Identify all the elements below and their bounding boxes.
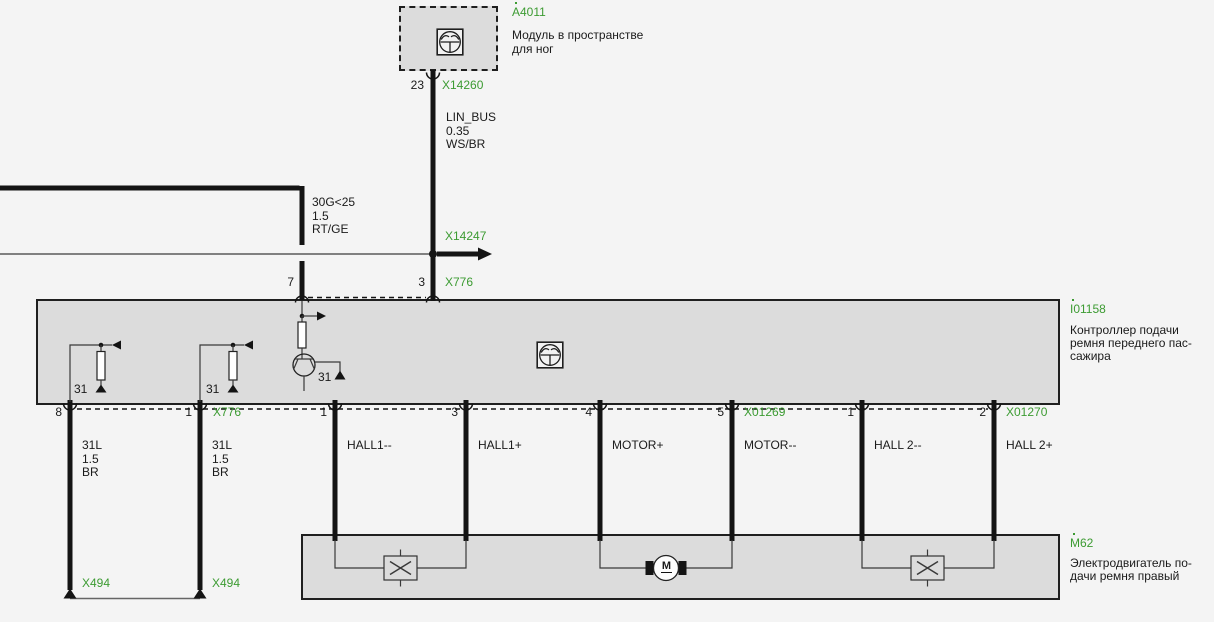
module-id-a4011[interactable]: A4011 [512, 6, 546, 20]
wire-label-31l-left-color: BR [82, 466, 99, 480]
module-desc-i01158-line3: сажира [1070, 350, 1111, 364]
pin-number-7: 7 [274, 276, 294, 290]
connector-label-x494-right[interactable]: X494 [212, 577, 240, 591]
pin-number-1a: 1 [172, 406, 192, 420]
pin-number-4: 4 [572, 406, 592, 420]
ground-label-31-b: 31 [206, 383, 219, 397]
pin-number-1c: 1 [834, 406, 854, 420]
wire-label-hall1-plus: HALL1+ [478, 439, 522, 453]
wire-label-hall2-plus: HALL 2+ [1006, 439, 1053, 453]
supply-wire [0, 186, 302, 300]
connector-label-x776-bottom[interactable]: X776 [213, 406, 241, 420]
module-box-m62[interactable] [301, 534, 1060, 600]
connector-label-x01269[interactable]: X01269 [744, 406, 785, 420]
pin-number-23: 23 [404, 79, 424, 93]
wire-label-31l-left-signal: 31L [82, 439, 102, 453]
wiring-diagram-canvas: A4011 Модуль в пространстве для ног 23 X… [0, 0, 1214, 622]
link-marker-dot [1072, 299, 1074, 301]
wire-label-31l-right-signal: 31L [212, 439, 232, 453]
wire-label-lin-bus-color: WS/BR [446, 138, 485, 152]
pin-number-1b: 1 [307, 406, 327, 420]
connector-label-x01270[interactable]: X01270 [1006, 406, 1047, 420]
module-desc-m62-line2: дачи ремня правый [1070, 570, 1179, 584]
connector-label-x494-left[interactable]: X494 [82, 577, 110, 591]
link-marker-dot [1073, 533, 1075, 535]
motor-symbol-letter: M [659, 560, 674, 573]
control-module-icon [536, 341, 564, 369]
pin-number-8: 8 [42, 406, 62, 420]
module-id-i01158[interactable]: I01158 [1070, 303, 1106, 317]
module-desc-a4011-line1: Модуль в пространстве [512, 29, 643, 43]
wire-label-hall1-minus: HALL1-- [347, 439, 392, 453]
connector-label-x14247[interactable]: X14247 [445, 230, 486, 244]
pin-number-2: 2 [966, 406, 986, 420]
connector-label-x14260[interactable]: X14260 [442, 79, 483, 93]
link-marker-dot [515, 2, 517, 4]
ground-label-31-a: 31 [74, 383, 87, 397]
module-box-a4011[interactable] [399, 6, 498, 71]
x14247-arrow [429, 248, 492, 261]
pin-number-3: 3 [405, 276, 425, 290]
wire-label-motor-minus: MOTOR-- [744, 439, 796, 453]
control-module-icon [436, 28, 464, 56]
pin-number-5: 5 [704, 406, 724, 420]
ground-label-31-c: 31 [318, 371, 331, 385]
pin-number-3b: 3 [438, 406, 458, 420]
module-desc-a4011-line2: для ног [512, 43, 554, 57]
wire-label-motor-plus: MOTOR+ [612, 439, 663, 453]
wire-label-hall2-minus: HALL 2-- [874, 439, 922, 453]
module-id-m62[interactable]: M62 [1070, 537, 1093, 551]
wire-label-lin-bus-signal: LIN_BUS [446, 111, 496, 125]
connector-label-x776-top[interactable]: X776 [445, 276, 473, 290]
wire-label-supply-color: RT/GE [312, 223, 348, 237]
wire-label-supply-signal: 30G<25 [312, 196, 355, 210]
wire-label-31l-right-color: BR [212, 466, 229, 480]
